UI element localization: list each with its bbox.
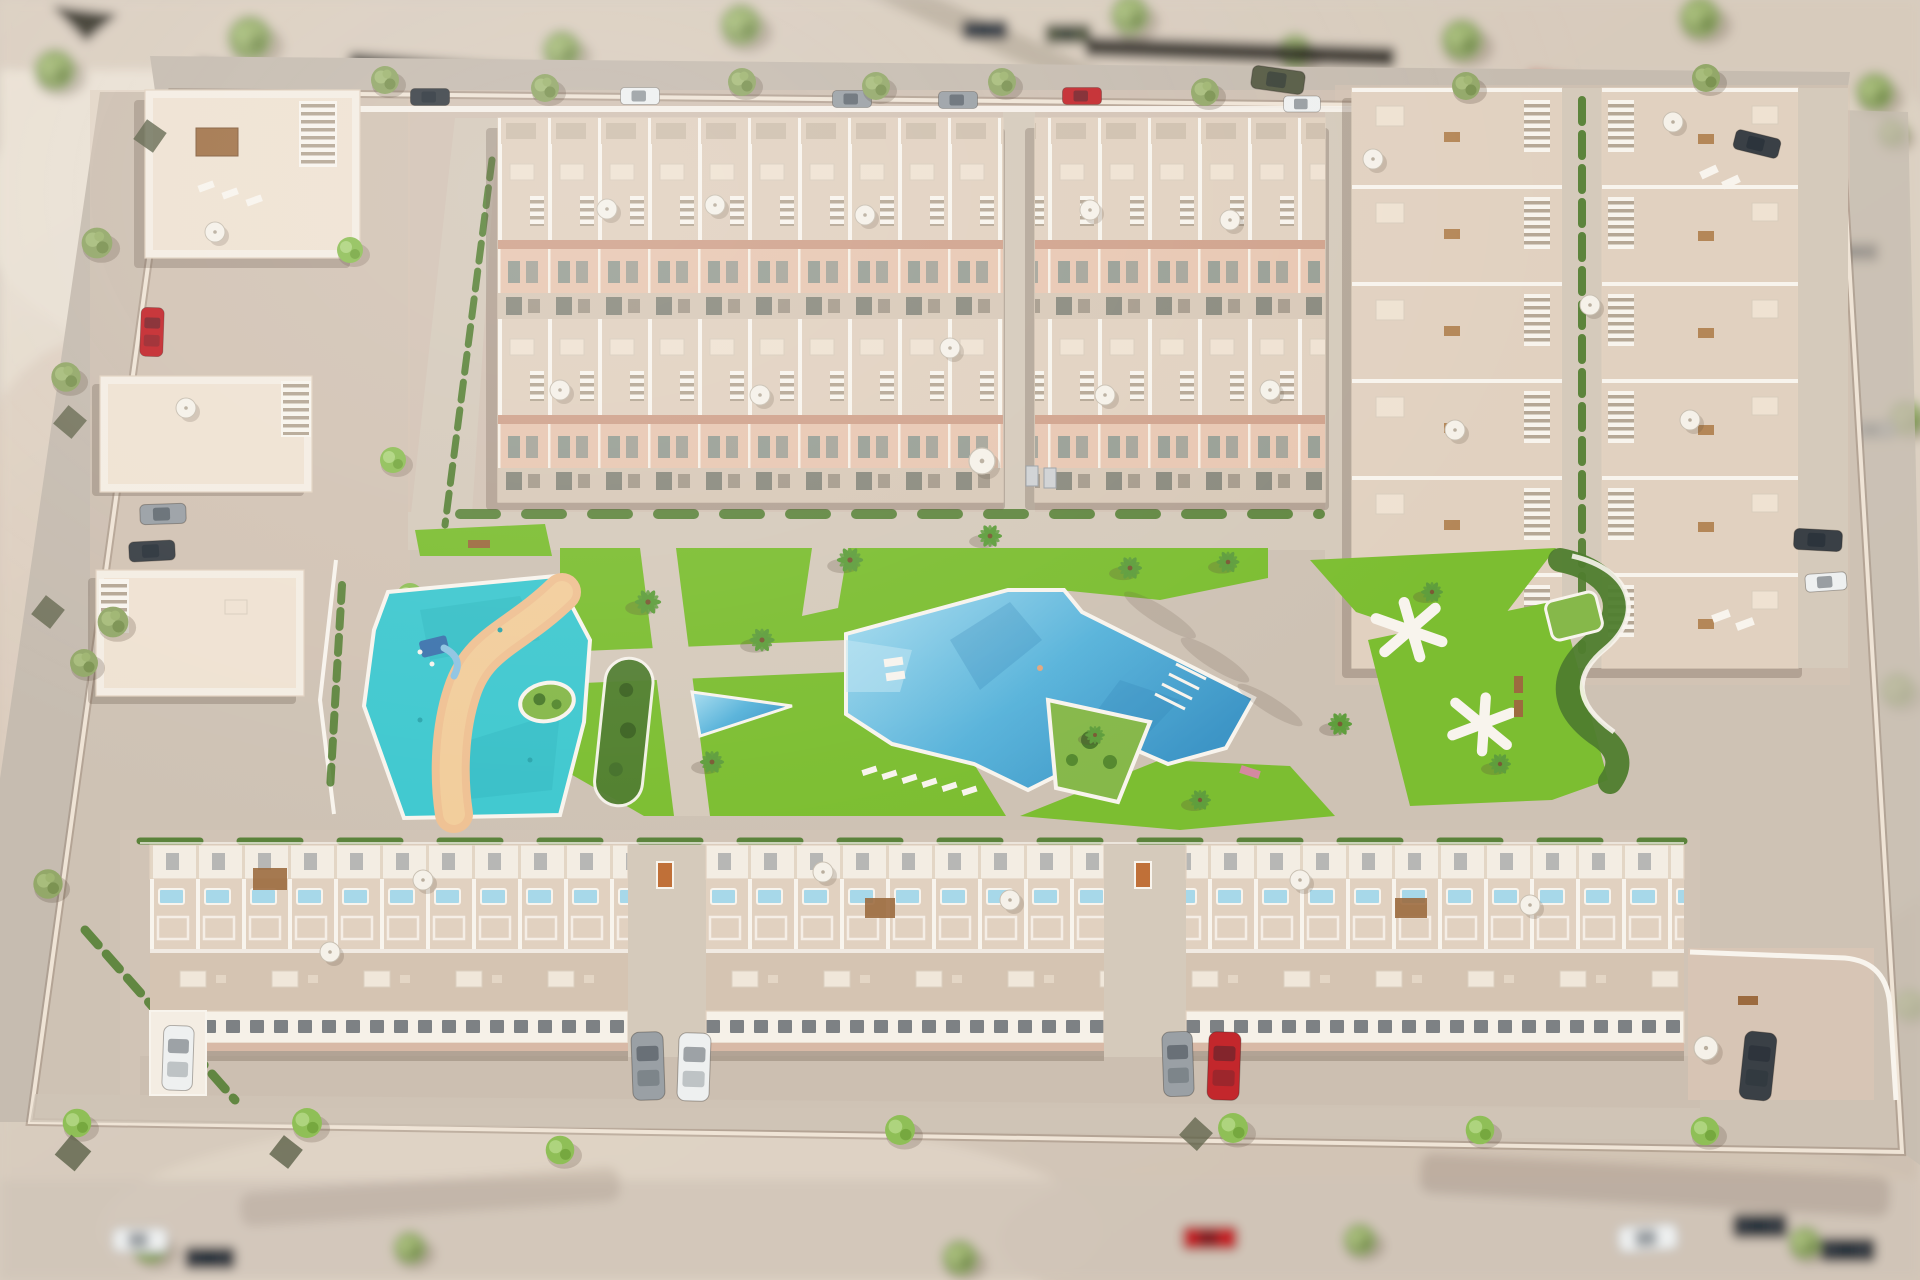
light-vignette (0, 0, 1920, 1280)
aerial-development-render: Aerial 3D architectural render of a resi… (0, 0, 1920, 1280)
